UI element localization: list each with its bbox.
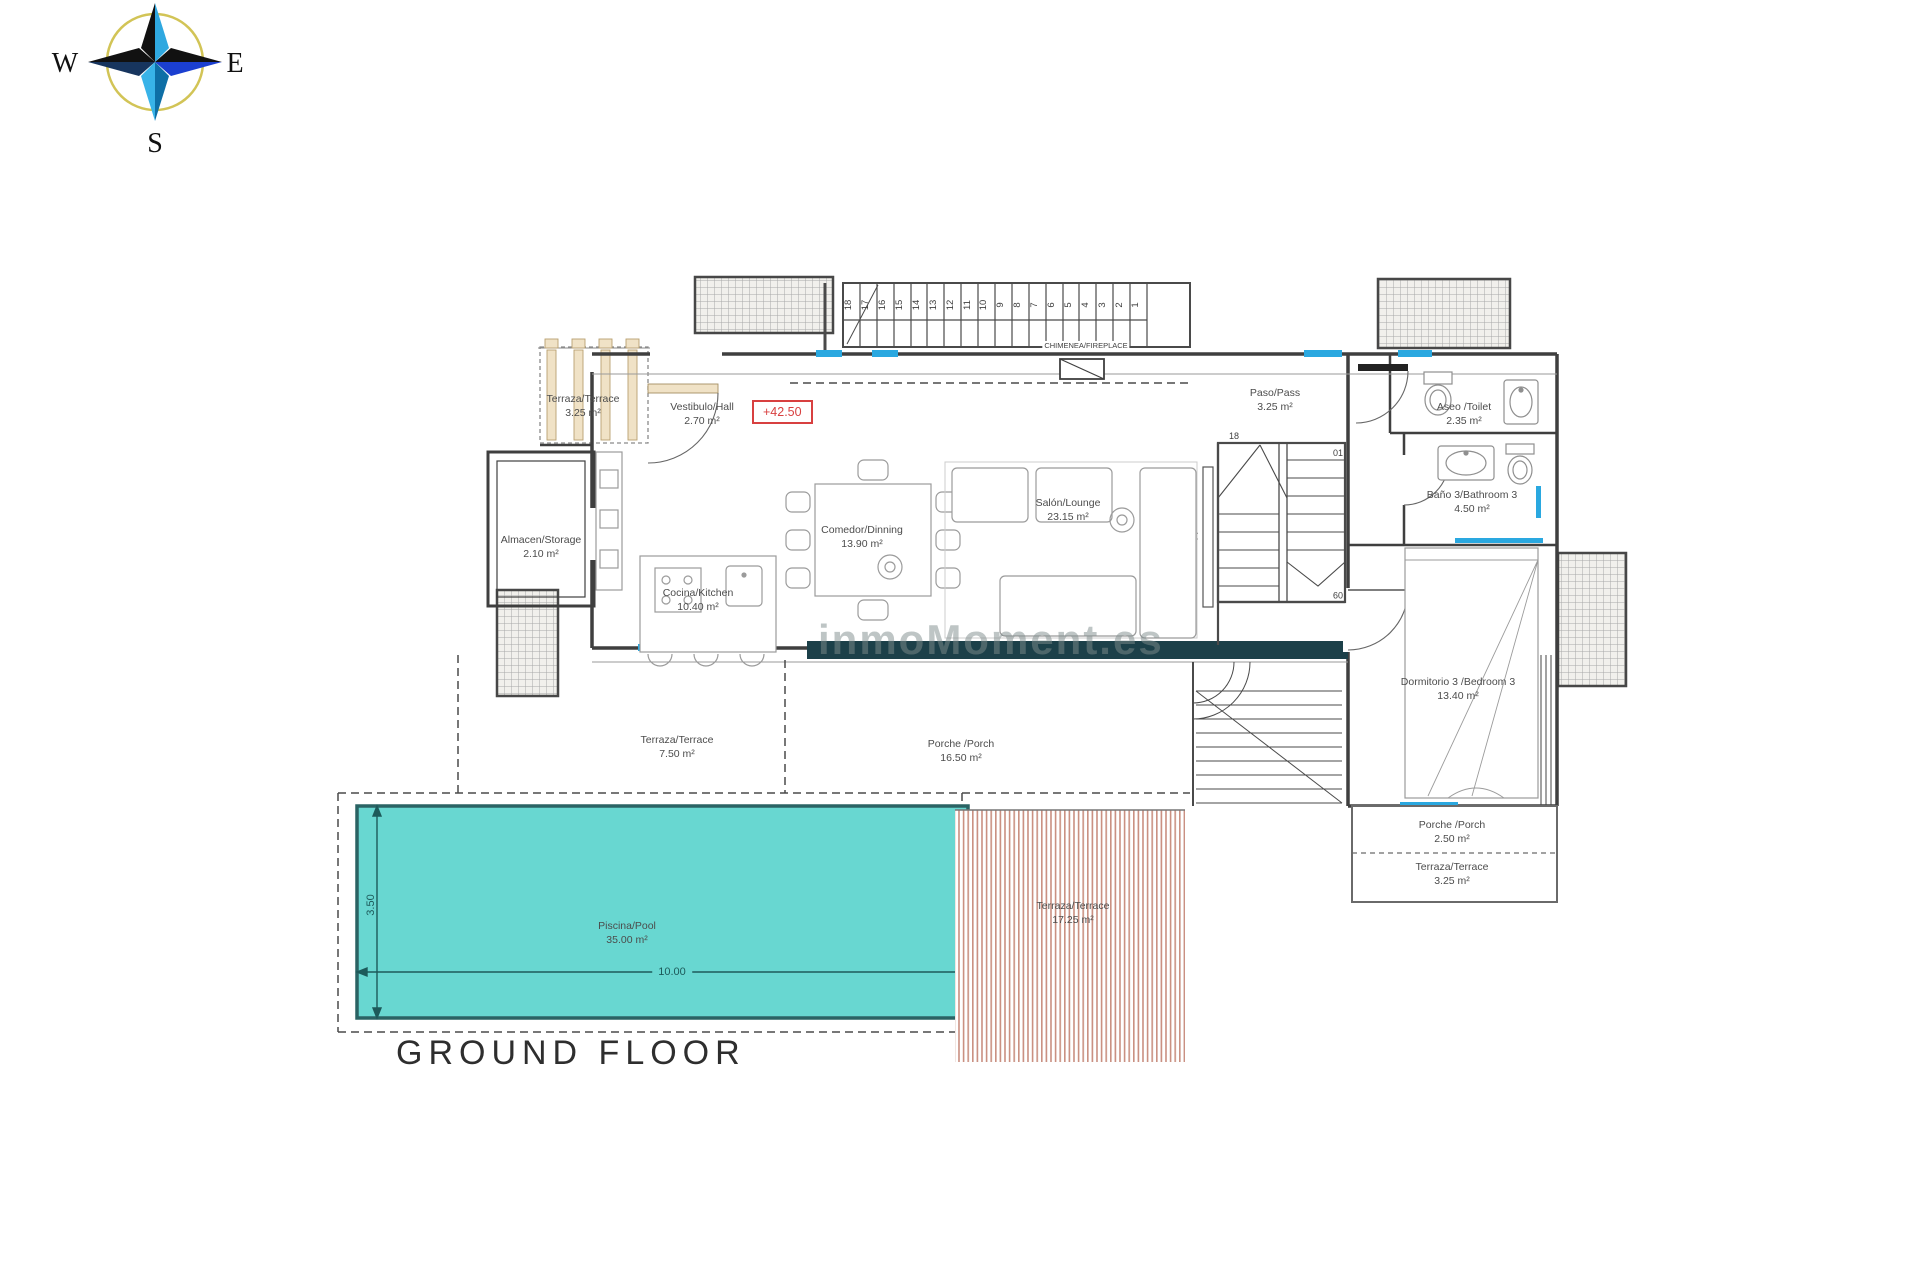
page-title: GROUND FLOOR <box>396 1034 746 1073</box>
room-area: 13.90 m² <box>821 538 903 552</box>
compass-west-label: W <box>52 48 79 79</box>
room-label-pass: Paso/Pass 3.25 m² <box>1250 387 1300 414</box>
bed <box>1405 548 1538 798</box>
pool-length-dimension: 10.00 <box>652 966 692 978</box>
kitchen-furniture <box>596 452 776 666</box>
room-label-terrace-nw: Terraza/Terrace 3.25 m² <box>547 393 620 420</box>
fireplace <box>1060 359 1104 379</box>
stair-step-number: 7 <box>1029 302 1040 307</box>
room-label-bathroom3: Baño 3/Bathroom 3 4.50 m² <box>1427 489 1517 516</box>
room-name: Vestibulo/Hall <box>670 401 734 415</box>
stair-step-number: 17 <box>860 300 871 311</box>
stair-step-number: 12 <box>945 300 956 311</box>
stair-step-number: 11 <box>962 300 973 310</box>
floorplan-canvas: 18 17 16 15 14 13 12 11 10 9 8 7 6 5 4 3… <box>0 0 1920 1280</box>
room-label-porch: Porche /Porch 16.50 m² <box>928 738 995 765</box>
level-marker-text: +42.50 <box>763 405 802 419</box>
striped-terrace <box>955 810 1185 1062</box>
pool-width-value: 3.50 <box>365 894 377 915</box>
room-name: Porche /Porch <box>1419 819 1486 833</box>
room-name: Baño 3/Bathroom 3 <box>1427 489 1517 503</box>
room-name: Terraza/Terrace <box>1037 900 1110 914</box>
stair-step-number: 10 <box>978 300 989 311</box>
stair-top-label: 18 <box>1229 431 1239 441</box>
room-name: Paso/Pass <box>1250 387 1300 401</box>
stair-step-number: 5 <box>1063 302 1074 307</box>
stair-step-number: 14 <box>911 300 922 311</box>
room-label-storage: Almacen/Storage 2.10 m² <box>501 534 582 561</box>
stair-mid-label: 09 <box>1333 590 1343 600</box>
room-area: 23.15 m² <box>1036 511 1101 525</box>
stair-step-number: 16 <box>877 300 888 311</box>
room-area: 3.25 m² <box>1250 401 1300 415</box>
stair-step-number: 6 <box>1046 302 1057 307</box>
stair-step-number: 2 <box>1114 302 1125 307</box>
fireplace-label: CHIMENEA/FIREPLACE <box>1042 341 1129 351</box>
room-area: 2.10 m² <box>501 548 582 562</box>
bathroom3-fixtures <box>1438 444 1534 484</box>
pool-width-dimension: 3.50 <box>365 894 377 915</box>
room-area: 3.25 m² <box>547 407 620 421</box>
room-label-dining: Comedor/Dinning 13.90 m² <box>821 524 903 551</box>
fireplace-label-text: CHIMENEA/FIREPLACE <box>1044 341 1127 350</box>
room-area: 10.40 m² <box>663 601 734 615</box>
pool <box>357 806 968 1018</box>
tv-unit <box>1203 467 1213 607</box>
room-name: Almacen/Storage <box>501 534 582 548</box>
room-label-lounge: Salón/Lounge 23.15 m² <box>1036 497 1101 524</box>
room-area: 35.00 m² <box>598 934 656 948</box>
room-label-terrace-s: Terraza/Terrace 7.50 m² <box>641 734 714 761</box>
room-area: 7.50 m² <box>641 748 714 762</box>
exterior-steps <box>1193 662 1342 806</box>
room-area: 4.50 m² <box>1427 503 1517 517</box>
room-name: Cocina/Kitchen <box>663 587 734 601</box>
compass-rose: W E S <box>52 3 244 159</box>
room-area: 2.70 m² <box>670 415 734 429</box>
stair-step-number: 9 <box>995 302 1006 307</box>
room-label-hall: Vestibulo/Hall 2.70 m² <box>670 401 734 428</box>
room-label-pool: Piscina/Pool 35.00 m² <box>598 920 656 947</box>
compass-east-label: E <box>226 48 243 79</box>
bedroom-east-glazing <box>1541 655 1551 806</box>
room-name: Aseo /Toilet <box>1437 401 1491 415</box>
stair-step-number: 8 <box>1012 302 1023 307</box>
room-name: Salón/Lounge <box>1036 497 1101 511</box>
room-name: Terraza/Terrace <box>641 734 714 748</box>
stair-step-number: 18 <box>843 300 854 311</box>
stair-step-number: 1 <box>1130 302 1141 307</box>
room-name: Porche /Porch <box>928 738 995 752</box>
room-name: Terraza/Terrace <box>1416 861 1489 875</box>
room-area: 2.50 m² <box>1419 833 1486 847</box>
room-area: 17.25 m² <box>1037 914 1110 928</box>
upper-stair-strip <box>825 283 1190 352</box>
room-name: Piscina/Pool <box>598 920 656 934</box>
room-name: Dormitorio 3 /Bedroom 3 <box>1401 676 1515 690</box>
room-area: 13.40 m² <box>1401 690 1515 704</box>
interior-staircase <box>1218 443 1345 645</box>
stair-step-number: 3 <box>1097 302 1108 307</box>
room-name: Terraza/Terrace <box>547 393 620 407</box>
room-label-bedroom3: Dormitorio 3 /Bedroom 3 13.40 m² <box>1401 676 1515 703</box>
room-label-terrace-se: Terraza/Terrace 17.25 m² <box>1037 900 1110 927</box>
stair-step-number: 15 <box>894 300 905 311</box>
room-label-kitchen: Cocina/Kitchen 10.40 m² <box>663 587 734 614</box>
room-label-terrace-e: Terraza/Terrace 3.25 m² <box>1416 861 1489 888</box>
stair-first-label: 01 <box>1333 448 1343 458</box>
room-area: 3.25 m² <box>1416 875 1489 889</box>
room-name: Comedor/Dinning <box>821 524 903 538</box>
room-label-toilet: Aseo /Toilet 2.35 m² <box>1437 401 1491 428</box>
stair-step-number: 4 <box>1080 302 1091 307</box>
room-label-porch-e: Porche /Porch 2.50 m² <box>1419 819 1486 846</box>
pool-length-value: 10.00 <box>658 966 686 978</box>
compass-south-label: S <box>147 128 163 159</box>
watermark: inmoMoment.es <box>818 616 1164 664</box>
room-area: 2.35 m² <box>1437 415 1491 429</box>
level-marker: +42.50 <box>752 400 813 424</box>
room-area: 16.50 m² <box>928 752 995 766</box>
stair-step-number: 13 <box>928 300 939 311</box>
